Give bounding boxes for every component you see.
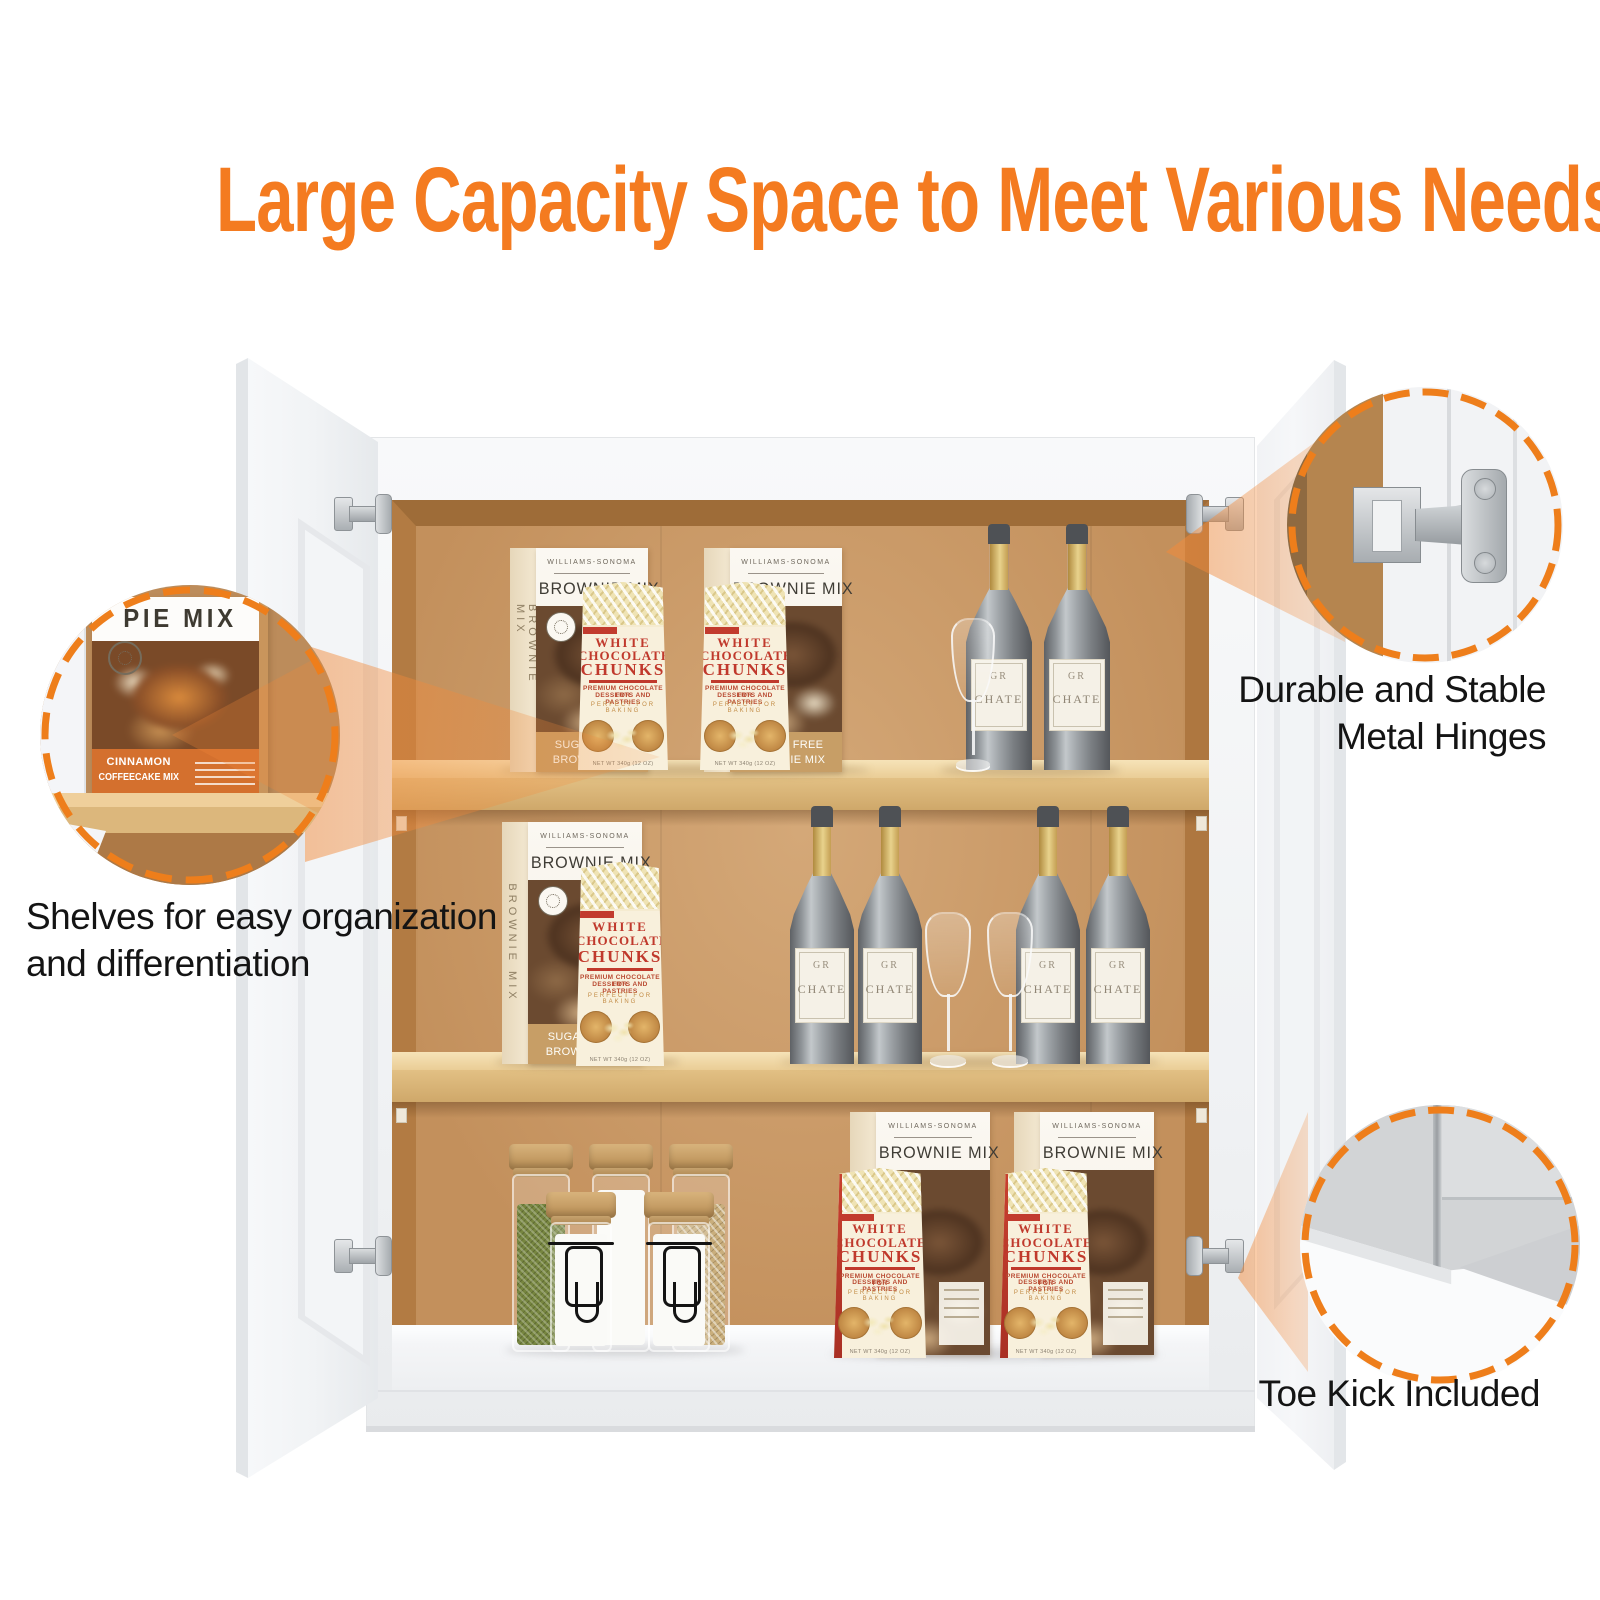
white-chocolate-chunks-bag: WHITE CHOCOLATE CHUNKS PREMIUM CHOCOLATE… (1000, 1168, 1092, 1358)
shelves-label: Shelves for easy organization and differ… (26, 893, 497, 987)
box-caption (939, 1282, 985, 1345)
jar-clip (565, 1246, 603, 1306)
shelf-2-front (392, 1070, 1209, 1102)
hinge-callout-circle (1287, 387, 1563, 663)
chunks-photo (578, 582, 668, 625)
white-chocolate-chunks-bag: WHITE CHOCOLATE CHUNKS PREMIUM CHOCOLATE… (834, 1168, 926, 1358)
shelf-pin (1196, 1108, 1207, 1123)
shelves-callout-circle: PIE MIX CINNAMON COFFEECAKE MIX (40, 585, 340, 885)
wine-bottle: GR CHATE (1044, 524, 1110, 770)
hinge-cup (1353, 487, 1421, 563)
wine-bottle: GR CHATE (790, 806, 854, 1064)
hinge-bottom-right (1186, 1234, 1244, 1276)
product-infographic: Large Capacity Space to Meet Various Nee… (0, 0, 1600, 1600)
clip-jar (648, 1192, 710, 1352)
wine-label: GR CHATE (863, 948, 917, 1023)
hinge-mounting-plate (1461, 469, 1507, 583)
shelf-pin (1196, 816, 1207, 831)
brand-seal-icon (546, 612, 576, 642)
hinges-label: Durable and Stable Metal Hinges (1238, 666, 1546, 760)
headline: Large Capacity Space to Meet Various Nee… (216, 148, 1384, 253)
hinge-bottom-left (334, 1234, 392, 1276)
clip-jar (550, 1192, 612, 1352)
toe-kick-label: Toe Kick Included (1258, 1370, 1540, 1417)
brand-seal-icon (108, 641, 142, 675)
brand-seal-icon (538, 886, 568, 916)
shelf-pin (396, 1108, 407, 1123)
wine-label: GR CHATE (1049, 659, 1104, 730)
wine-label: GR CHATE (1091, 948, 1145, 1023)
red-tag (583, 627, 617, 634)
wood-lid (509, 1144, 574, 1170)
wine-bottle: GR CHATE (858, 806, 922, 1064)
wine-label: GR CHATE (795, 948, 849, 1023)
wine-glass (948, 618, 998, 770)
cabinet-bottom-line (366, 1390, 1255, 1392)
screw-icon (1474, 478, 1496, 500)
wine-bottle: GR CHATE (1086, 806, 1150, 1064)
hinge-top-left (334, 492, 392, 534)
white-chocolate-chunks-bag: WHITE CHOCOLATE CHUNKS PREMIUM CHOCOLATE… (700, 582, 790, 770)
white-chocolate-chunks-bag: WHITE CHOCOLATE CHUNKS PREMIUM CHOCOLATE… (576, 862, 664, 1066)
cabinet-bottom-edge (366, 1426, 1255, 1432)
wine-glass (984, 912, 1036, 1066)
wine-glass (922, 912, 974, 1066)
jar-clip (663, 1246, 701, 1306)
toe-kick-callout-circle (1300, 1105, 1580, 1385)
screw-icon (1474, 552, 1496, 574)
